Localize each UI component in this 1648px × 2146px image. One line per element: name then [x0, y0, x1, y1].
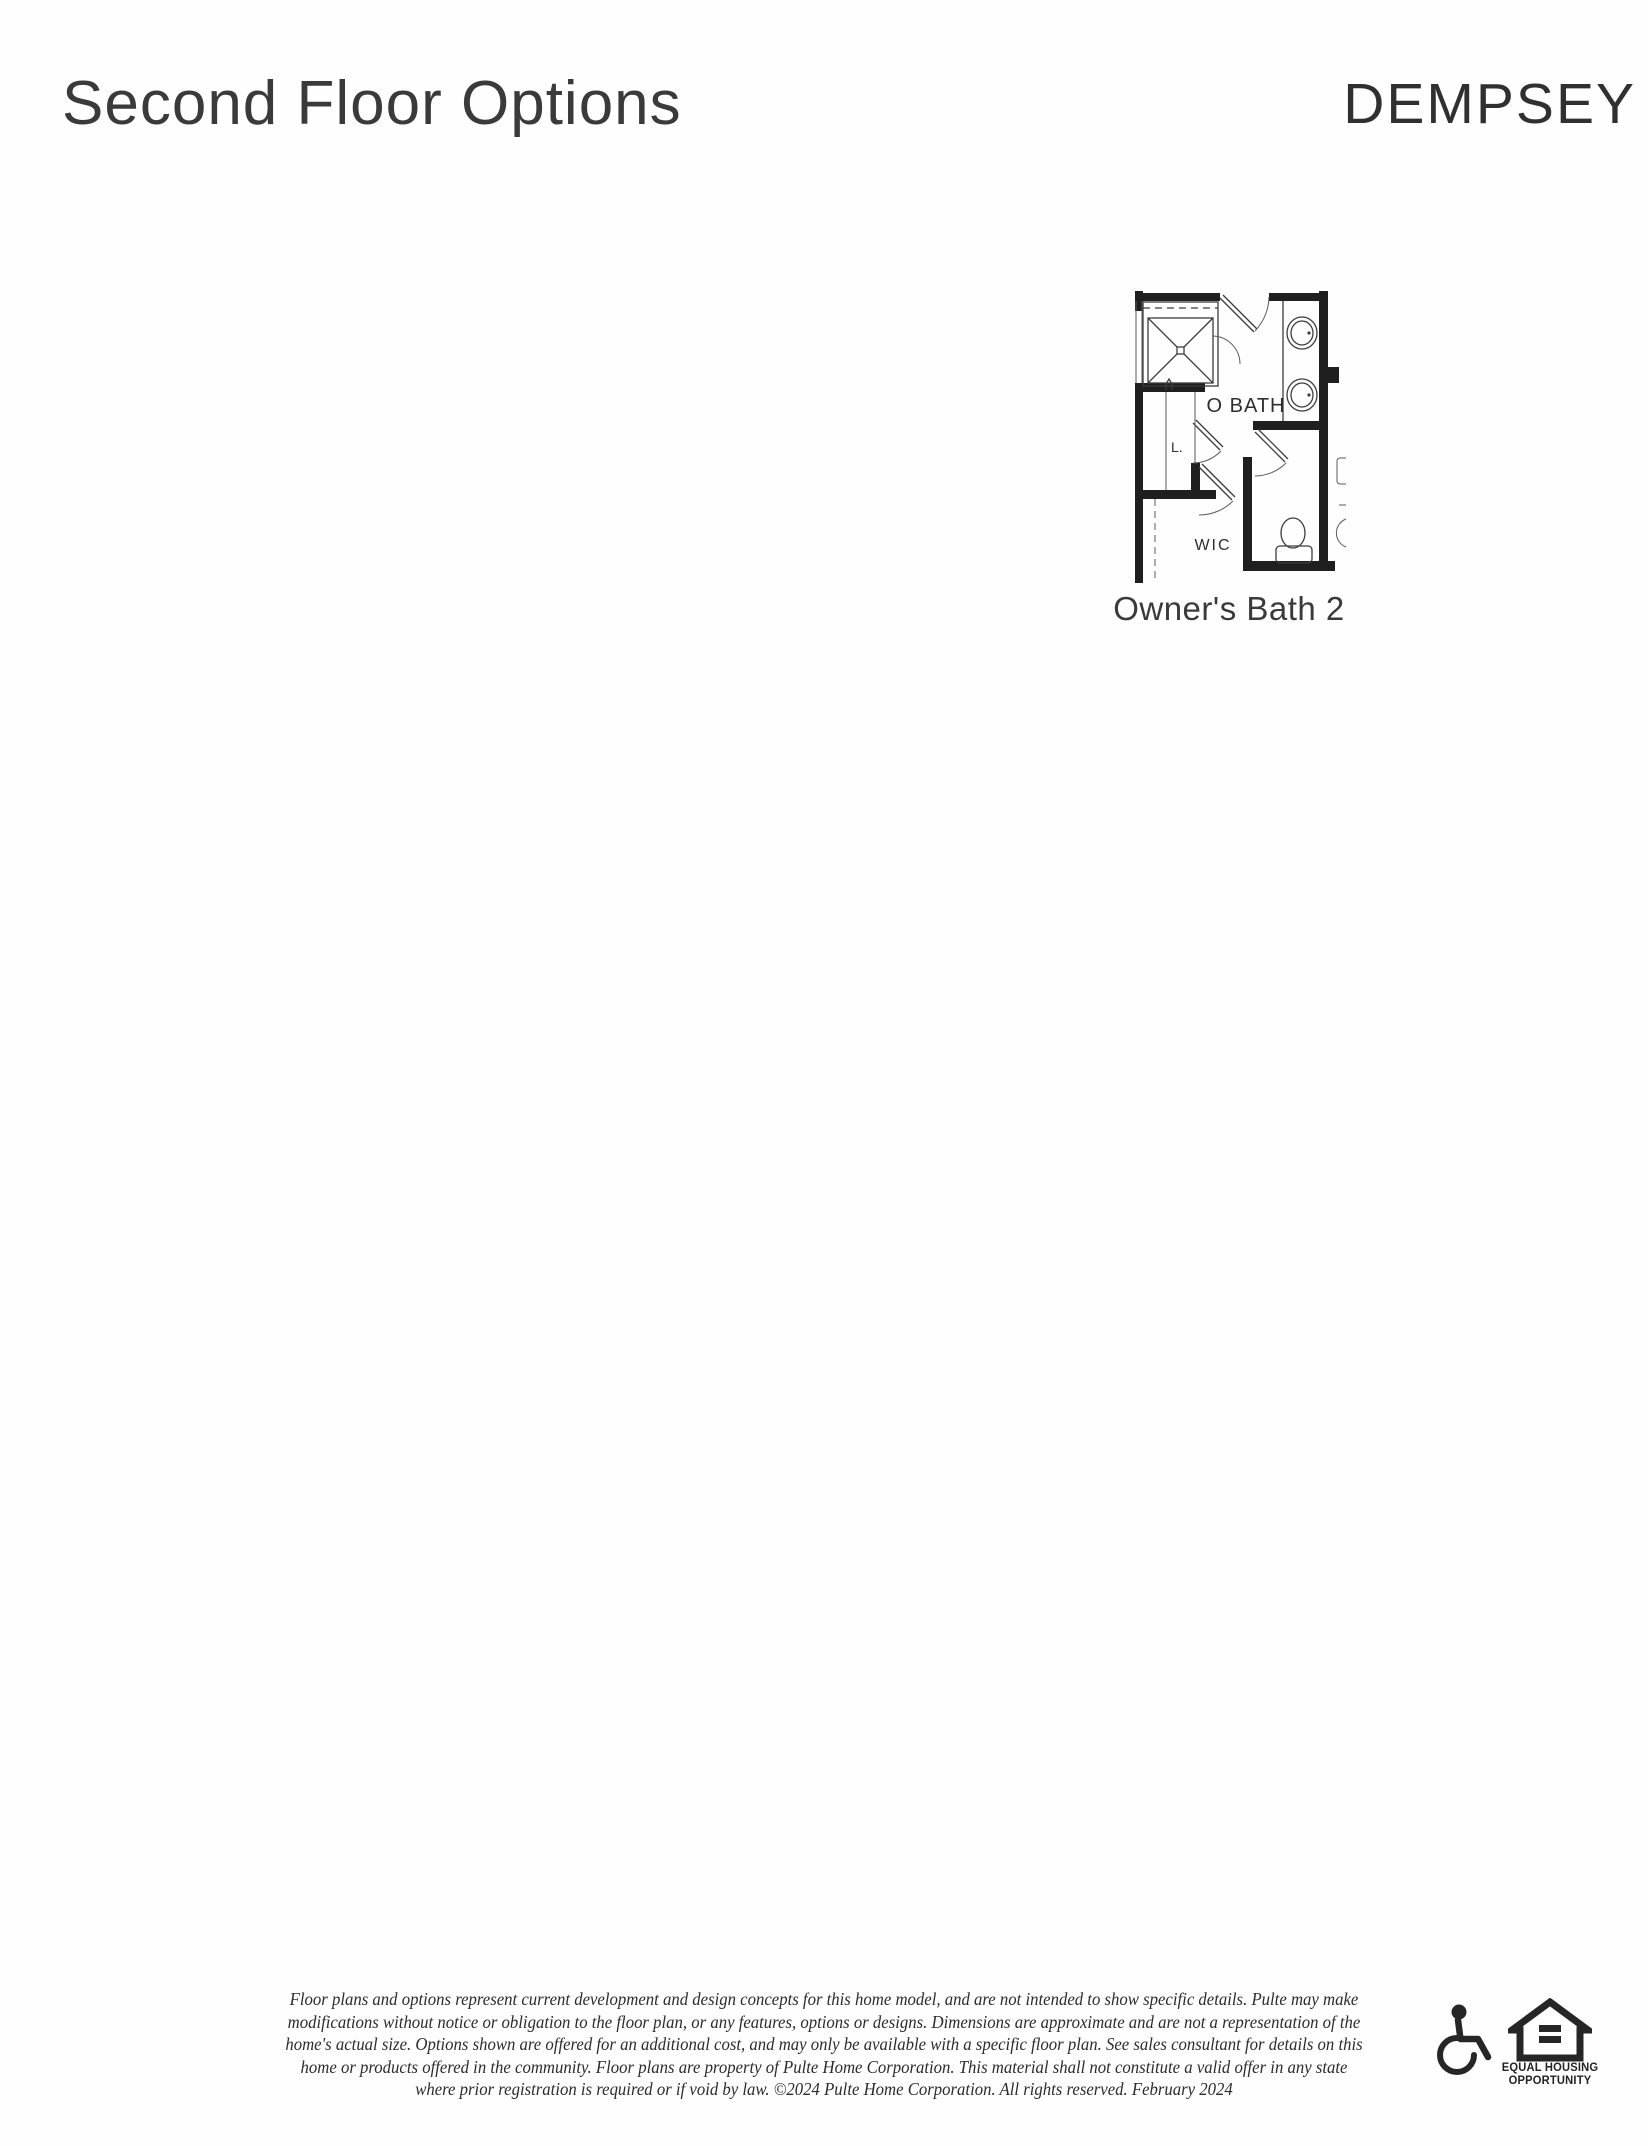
wall-wic-top	[1135, 490, 1216, 499]
wall-left	[1135, 383, 1143, 583]
toilet	[1276, 518, 1312, 563]
wall-wc-right	[1319, 421, 1328, 569]
room-label-wic: WIC	[1194, 537, 1231, 554]
shower-drain	[1177, 347, 1184, 354]
wheelchair-wheel	[1440, 2038, 1474, 2072]
door-arc	[1199, 501, 1233, 515]
brochure-page: Second Floor Options DEMPSEY	[0, 0, 1648, 2146]
door-leaf	[1255, 432, 1285, 462]
equal-housing-line2: OPPORTUNITY	[1502, 2075, 1599, 2088]
floor-plan-drawing: O BATH L. WIC	[1133, 291, 1363, 591]
equal-housing-text: EQUAL HOUSING OPPORTUNITY	[1502, 2062, 1599, 2088]
vanity-sinks	[1283, 301, 1317, 421]
disclaimer: Floor plans and options represent curren…	[58, 1988, 1591, 2101]
disclaimer-line: where prior registration is required or …	[58, 2078, 1591, 2101]
door-leaf	[1220, 298, 1254, 332]
door-arc	[1255, 297, 1269, 331]
wall-shower-bottom	[1135, 383, 1205, 392]
disclaimer-line: modifications without notice or obligati…	[58, 2011, 1591, 2034]
room-label-bath: O BATH	[1207, 395, 1286, 417]
wall-bump	[1328, 367, 1339, 383]
floor-plan-caption: Owner's Bath 2	[1096, 590, 1362, 628]
model-name: DEMPSEY	[1343, 71, 1636, 137]
adjacent-fixtures	[1336, 458, 1346, 547]
room-label-linen: L.	[1171, 439, 1183, 455]
shower	[1136, 301, 1218, 390]
shower-door-arc	[1213, 336, 1240, 364]
equal-housing-house-icon	[1508, 1998, 1592, 2062]
equal-housing-line1: EQUAL HOUSING	[1502, 2062, 1599, 2075]
wall-right-upper	[1319, 291, 1328, 421]
door-leaf	[1193, 423, 1220, 450]
wall-stub	[1191, 463, 1200, 490]
faucet	[1307, 393, 1310, 396]
page-title: Second Floor Options	[62, 68, 682, 139]
disclaimer-line: home or products offered in the communit…	[58, 2056, 1591, 2079]
floor-plan-figure: O BATH L. WIC	[1133, 291, 1363, 591]
faucet	[1307, 331, 1310, 334]
door-arc	[1255, 463, 1286, 476]
wall-top-left	[1141, 293, 1220, 301]
wheelchair-icon	[1432, 2003, 1494, 2086]
wall-below-vanity	[1253, 421, 1328, 430]
disclaimer-line: home's actual size. Options shown are of…	[58, 2033, 1591, 2056]
door-arc	[1193, 451, 1221, 463]
equal-housing-logo: EQUAL HOUSING OPPORTUNITY	[1500, 1998, 1600, 2088]
wall-top-right	[1269, 293, 1319, 301]
disclaimer-line: Floor plans and options represent curren…	[58, 1988, 1591, 2011]
interior-lines	[1155, 392, 1195, 583]
wheelchair-body	[1458, 2020, 1488, 2057]
wall-wc-left	[1243, 457, 1252, 569]
